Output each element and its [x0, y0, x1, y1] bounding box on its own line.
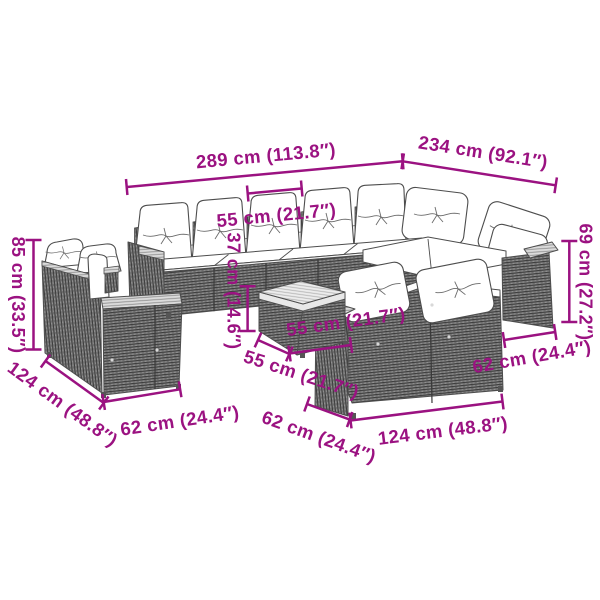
svg-text:37 cm (14.6″): 37 cm (14.6″): [223, 233, 243, 350]
svg-text:69 cm (27.2″): 69 cm (27.2″): [575, 224, 595, 341]
svg-text:85 cm (33.5″): 85 cm (33.5″): [8, 237, 28, 354]
